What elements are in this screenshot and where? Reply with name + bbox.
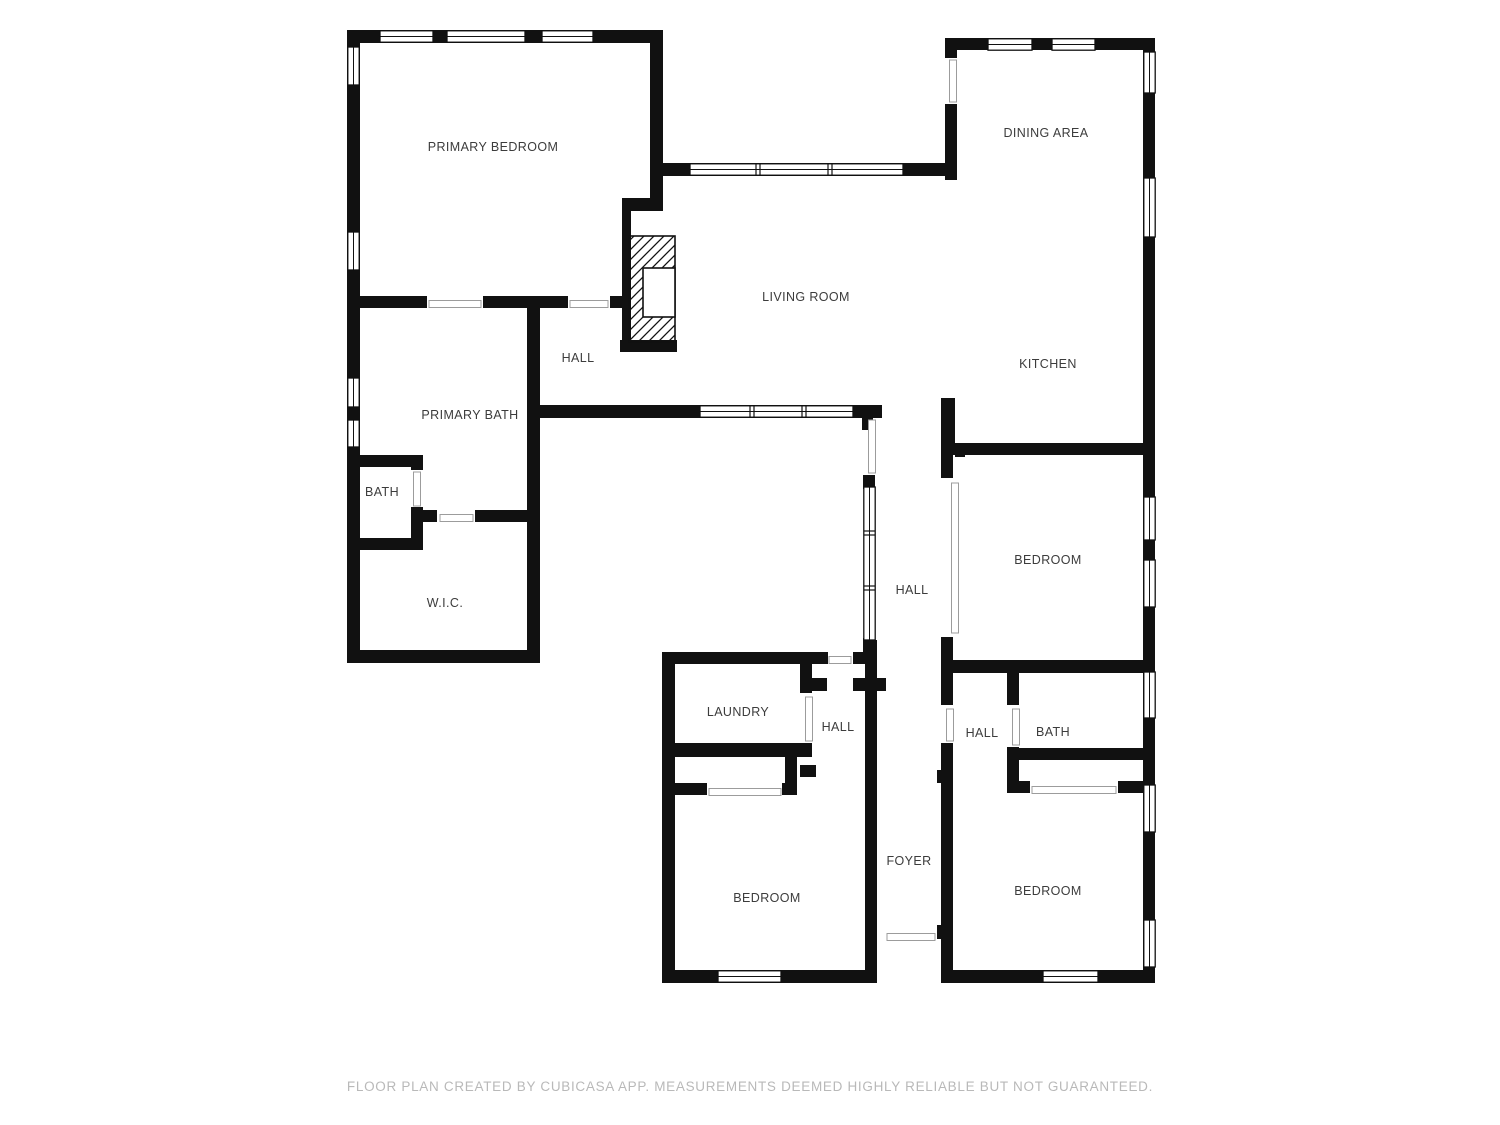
window-glyph xyxy=(1144,52,1155,93)
window-glyph xyxy=(988,39,1032,50)
window-glyph xyxy=(447,31,525,42)
floor-plan-page: PRIMARY BEDROOMDINING AREALIVING ROOMKIT… xyxy=(0,0,1500,1125)
window-glyph xyxy=(700,406,853,417)
wall-segment xyxy=(941,673,953,705)
room-label-foyer: FOYER xyxy=(886,854,931,868)
window-glyph xyxy=(690,164,903,175)
window-glyph xyxy=(1052,39,1095,50)
wall-segment xyxy=(347,538,422,550)
window-glyph xyxy=(1144,497,1155,540)
window-glyph xyxy=(348,420,359,447)
wall-segment xyxy=(347,650,540,663)
door-opening xyxy=(869,420,876,473)
wall-segment xyxy=(527,296,540,663)
room-label-bedroom-east: BEDROOM xyxy=(1014,553,1081,567)
room-label-primary-bath: PRIMARY BATH xyxy=(421,408,518,422)
door-opening xyxy=(806,697,813,741)
window-glyph xyxy=(1144,920,1155,967)
wall-segment xyxy=(347,296,427,308)
door-opening xyxy=(414,472,421,506)
door-opening xyxy=(829,657,851,664)
window-glyph xyxy=(1144,785,1155,832)
wall-segment xyxy=(475,510,537,522)
wall-segment xyxy=(1015,781,1030,793)
window-glyph xyxy=(348,47,359,85)
door-opening xyxy=(1032,787,1116,794)
window-glyph xyxy=(348,378,359,407)
door-opening xyxy=(440,515,473,522)
window-glyph xyxy=(718,971,781,982)
fireplace xyxy=(629,236,675,342)
doors-layer xyxy=(414,60,1117,941)
door-opening xyxy=(887,934,935,941)
room-label-primary-bedroom: PRIMARY BEDROOM xyxy=(428,140,559,154)
wall-segment xyxy=(650,30,663,211)
wall-segment xyxy=(800,652,812,693)
room-label-dining-area: DINING AREA xyxy=(1004,126,1089,140)
room-label-laundry: LAUNDRY xyxy=(707,705,770,719)
room-label-bedroom-south: BEDROOM xyxy=(733,891,800,905)
wall-segment xyxy=(411,455,423,470)
room-label-hall-center: HALL xyxy=(896,583,929,597)
wall-segment xyxy=(782,783,797,795)
wall-segment xyxy=(1007,673,1019,705)
room-label-bath-primary: BATH xyxy=(365,485,399,499)
wall-segment xyxy=(947,38,1155,50)
wall-segment xyxy=(955,447,965,457)
room-label-wic: W.I.C. xyxy=(427,596,463,610)
room-label-hall-east: HALL xyxy=(966,726,999,740)
wall-segment xyxy=(1007,748,1155,760)
windows-layer xyxy=(348,31,1155,982)
room-label-kitchen: KITCHEN xyxy=(1019,357,1077,371)
room-label-bath-east: BATH xyxy=(1036,725,1070,739)
wall-segment xyxy=(800,765,816,777)
door-opening xyxy=(429,301,481,308)
door-opening xyxy=(952,483,959,633)
wall-segment xyxy=(812,678,827,691)
wall-segment xyxy=(941,660,1155,673)
wall-segment xyxy=(947,443,1155,455)
wall-segment xyxy=(853,678,886,691)
window-glyph xyxy=(864,487,875,640)
wall-segment xyxy=(937,925,953,939)
wall-segment xyxy=(347,308,360,663)
window-glyph xyxy=(380,31,433,42)
door-opening xyxy=(950,60,957,102)
wall-segment xyxy=(865,640,877,983)
room-label-hall-laundry: HALL xyxy=(822,720,855,734)
wall-segment xyxy=(483,296,568,308)
window-glyph xyxy=(348,232,359,270)
door-opening xyxy=(570,301,608,308)
room-label-bedroom-southeast: BEDROOM xyxy=(1014,884,1081,898)
wall-segment xyxy=(941,455,953,478)
door-opening xyxy=(947,709,954,741)
fireplace-firebox xyxy=(643,268,675,317)
window-glyph xyxy=(1144,560,1155,607)
door-opening xyxy=(709,789,781,796)
wall-segment xyxy=(1143,38,1155,455)
wall-segment xyxy=(937,770,953,783)
room-label-living-room: LIVING ROOM xyxy=(762,290,850,304)
room-label-hall-primary: HALL xyxy=(562,351,595,365)
wall-segment xyxy=(1143,455,1155,660)
wall-segment xyxy=(670,783,707,795)
footer-note: FLOOR PLAN CREATED BY CUBICASA APP. MEAS… xyxy=(347,1079,1153,1094)
window-glyph xyxy=(1043,971,1098,982)
door-opening xyxy=(1013,709,1020,745)
wall-segment xyxy=(662,652,675,983)
floor-plan-svg: PRIMARY BEDROOMDINING AREALIVING ROOMKIT… xyxy=(0,0,1500,1125)
window-glyph xyxy=(1144,178,1155,237)
wall-segment xyxy=(945,104,957,180)
window-glyph xyxy=(542,31,593,42)
wall-segment xyxy=(415,510,437,522)
window-glyph xyxy=(1144,672,1155,718)
wall-segment xyxy=(662,743,808,757)
